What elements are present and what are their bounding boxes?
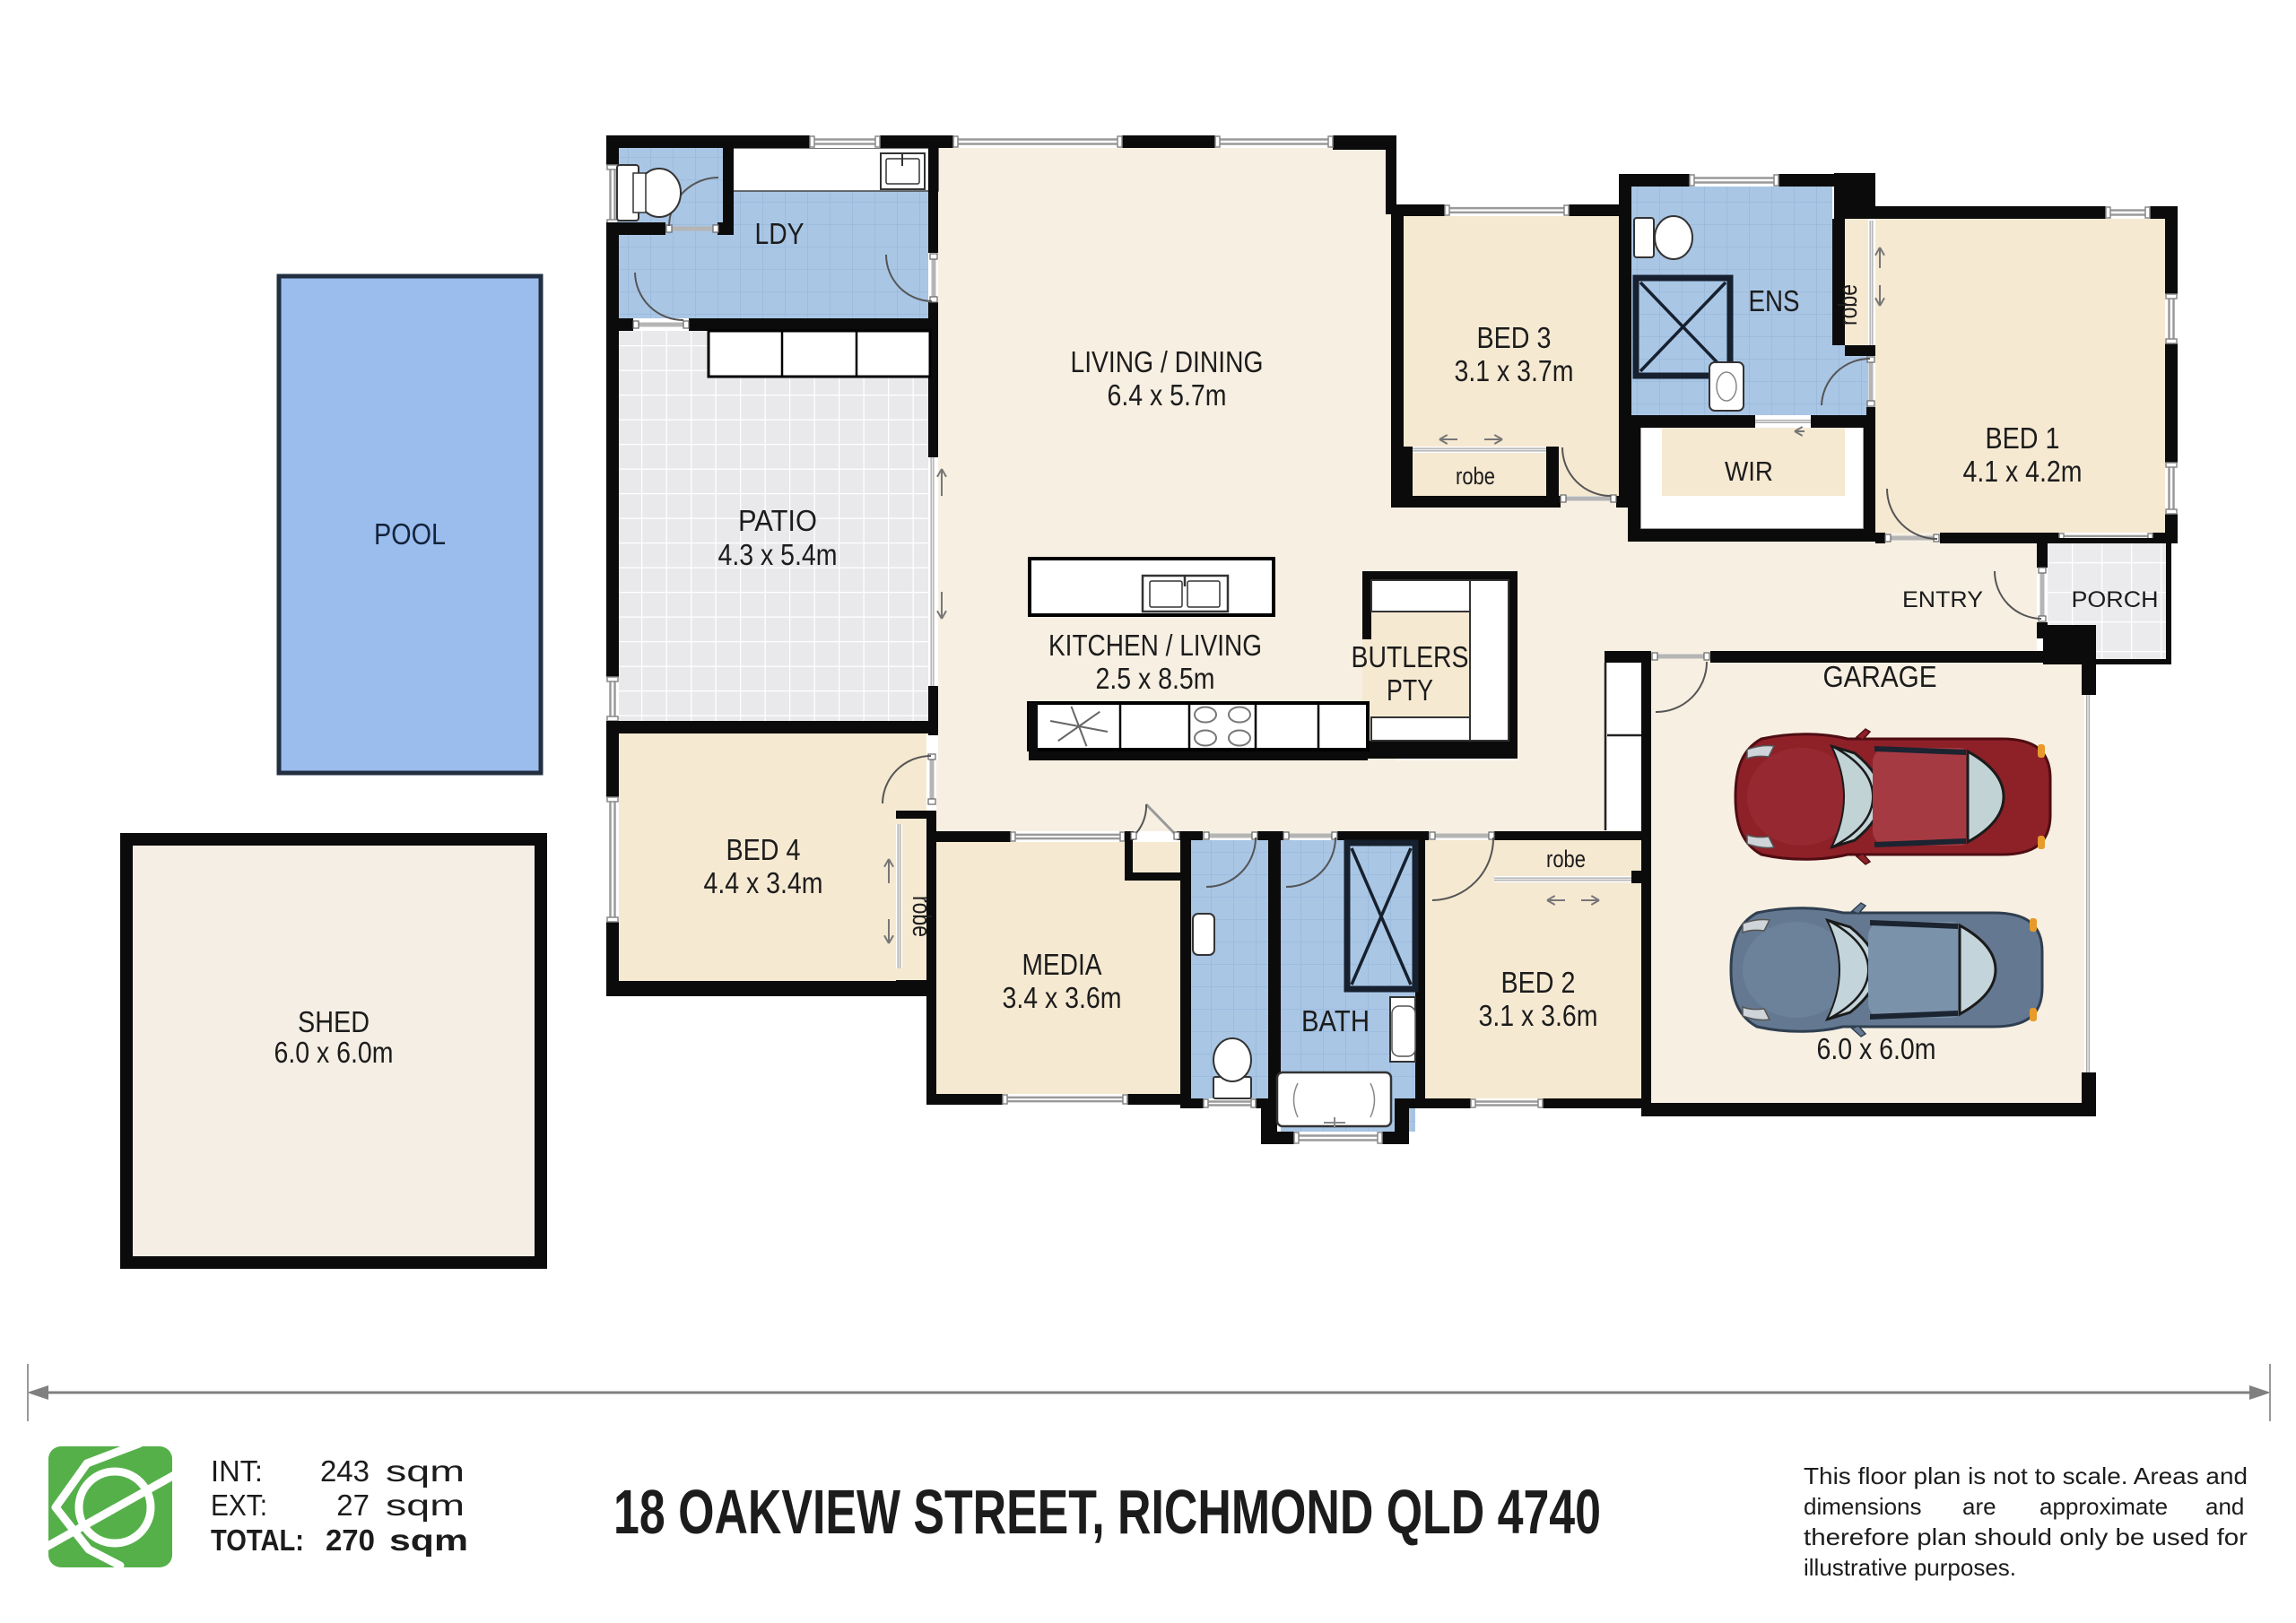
- svg-text:27: 27: [336, 1488, 370, 1522]
- svg-text:robe: robe: [1456, 463, 1495, 490]
- svg-text:therefore plan should only be: therefore plan should only be used for: [1804, 1523, 2248, 1550]
- svg-text:PTY: PTY: [1387, 673, 1433, 707]
- svg-text:270: 270: [326, 1523, 375, 1557]
- svg-text:GARAGE: GARAGE: [1823, 660, 1937, 693]
- svg-text:6.0 x 6.0m: 6.0 x 6.0m: [274, 1036, 394, 1069]
- svg-text:4.4 x 3.4m: 4.4 x 3.4m: [704, 866, 823, 899]
- svg-text:BED 1: BED 1: [1986, 421, 2060, 455]
- svg-text:LDY: LDY: [755, 217, 804, 250]
- svg-text:BED 3: BED 3: [1477, 321, 1552, 354]
- svg-text:3.4 x 3.6m: 3.4 x 3.6m: [1003, 981, 1122, 1014]
- svg-text:robe: robe: [1546, 846, 1586, 872]
- svg-text:WIR: WIR: [1725, 456, 1773, 487]
- svg-text:INT:: INT:: [211, 1454, 263, 1488]
- svg-text:This floor plan is not to scal: This floor plan is not to scale. Areas a…: [1804, 1462, 2248, 1489]
- svg-text:BATH: BATH: [1301, 1004, 1370, 1037]
- svg-text:sqm: sqm: [386, 1488, 465, 1522]
- svg-text:ENS: ENS: [1749, 284, 1800, 317]
- svg-text:SHED: SHED: [298, 1005, 370, 1038]
- svg-text:PATIO: PATIO: [738, 504, 817, 537]
- svg-text:dimensions: dimensions: [1804, 1493, 1922, 1520]
- svg-text:4.3 x 5.4m: 4.3 x 5.4m: [718, 538, 838, 571]
- svg-text:robe: robe: [907, 896, 935, 937]
- svg-text:and: and: [2205, 1493, 2244, 1520]
- svg-text:MEDIA: MEDIA: [1022, 948, 1102, 981]
- svg-text:illustrative purposes.: illustrative purposes.: [1804, 1554, 2016, 1581]
- svg-text:2.5 x 8.5m: 2.5 x 8.5m: [1096, 662, 1215, 695]
- svg-text:4.1 x 4.2m: 4.1 x 4.2m: [1963, 455, 2083, 488]
- svg-text:are: are: [1962, 1493, 1996, 1520]
- svg-text:ENTRY: ENTRY: [1902, 587, 1983, 612]
- svg-text:robe: robe: [1834, 284, 1863, 325]
- svg-text:POOL: POOL: [374, 517, 446, 551]
- svg-text:3.1 x 3.6m: 3.1 x 3.6m: [1479, 999, 1598, 1032]
- svg-text:PORCH: PORCH: [2072, 587, 2159, 612]
- svg-text:BUTLERS: BUTLERS: [1352, 640, 1469, 673]
- svg-text:243: 243: [320, 1454, 370, 1488]
- svg-text:18 OAKVIEW STREET, RICHMOND QL: 18 OAKVIEW STREET, RICHMOND QLD 4740: [613, 1477, 1601, 1547]
- svg-text:BED 4: BED 4: [726, 833, 801, 866]
- svg-text:6.0 x 6.0m: 6.0 x 6.0m: [1817, 1032, 1936, 1065]
- svg-text:KITCHEN / LIVING: KITCHEN / LIVING: [1048, 629, 1262, 662]
- svg-text:sqm: sqm: [389, 1523, 468, 1557]
- svg-text:3.1 x 3.7m: 3.1 x 3.7m: [1455, 354, 1574, 387]
- svg-text:sqm: sqm: [386, 1454, 465, 1488]
- svg-text:approximate: approximate: [2039, 1493, 2168, 1520]
- svg-text:LIVING / DINING: LIVING / DINING: [1071, 345, 1264, 378]
- svg-text:TOTAL:: TOTAL:: [211, 1523, 304, 1557]
- svg-text:BED 2: BED 2: [1501, 966, 1576, 999]
- svg-text:6.4 x 5.7m: 6.4 x 5.7m: [1108, 378, 1227, 412]
- svg-text:EXT:: EXT:: [211, 1488, 267, 1522]
